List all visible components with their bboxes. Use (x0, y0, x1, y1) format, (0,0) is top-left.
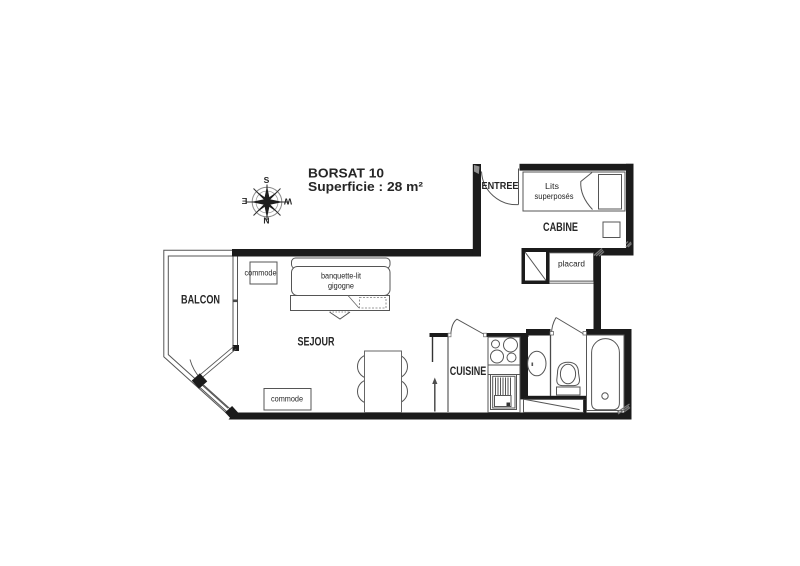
svg-text:commode: commode (245, 269, 278, 278)
svg-text:gigogne: gigogne (328, 282, 354, 291)
svg-text:commode: commode (271, 395, 304, 404)
svg-text:superposés: superposés (535, 192, 574, 201)
svg-text:Lits: Lits (545, 182, 559, 191)
svg-text:banquette-lit: banquette-lit (321, 272, 362, 281)
svg-text:ENTREE: ENTREE (482, 180, 519, 192)
svg-text:BALCON: BALCON (181, 295, 220, 307)
svg-text:E: E (241, 196, 247, 206)
svg-text:CUISINE: CUISINE (450, 366, 487, 378)
svg-text:SEJOUR: SEJOUR (298, 335, 335, 349)
svg-text:CABINE: CABINE (543, 222, 578, 234)
svg-text:S: S (264, 175, 270, 185)
svg-text:Superficie : 28 m²: Superficie : 28 m² (308, 179, 424, 194)
svg-text:placard: placard (558, 260, 585, 269)
svg-text:N: N (263, 216, 269, 226)
svg-text:W: W (284, 196, 293, 206)
